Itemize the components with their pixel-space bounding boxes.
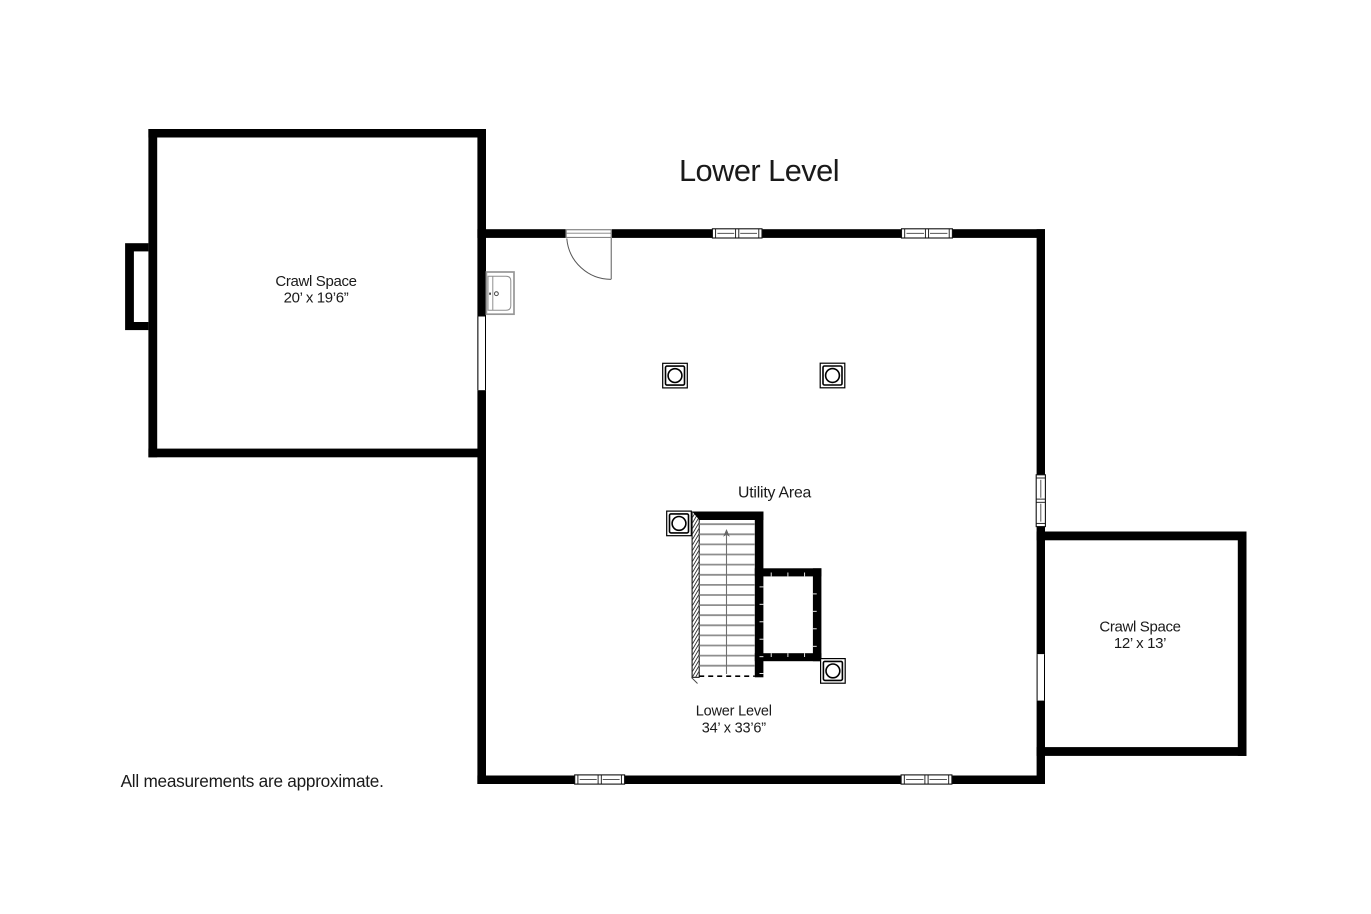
svg-text:12’ x 13’: 12’ x 13’ (1114, 635, 1166, 652)
svg-text:All measurements are approxima: All measurements are approximate. (121, 771, 384, 791)
svg-text:Lower Level: Lower Level (696, 704, 772, 720)
svg-text:Lower Level: Lower Level (679, 153, 839, 188)
svg-text:Crawl Space: Crawl Space (1099, 619, 1180, 636)
svg-text:20’ x 19’6”: 20’ x 19’6” (284, 289, 349, 306)
svg-text:Crawl Space: Crawl Space (275, 273, 356, 290)
svg-text:34’ x 33’6”: 34’ x 33’6” (702, 720, 767, 736)
svg-text:Utility Area: Utility Area (738, 485, 812, 502)
